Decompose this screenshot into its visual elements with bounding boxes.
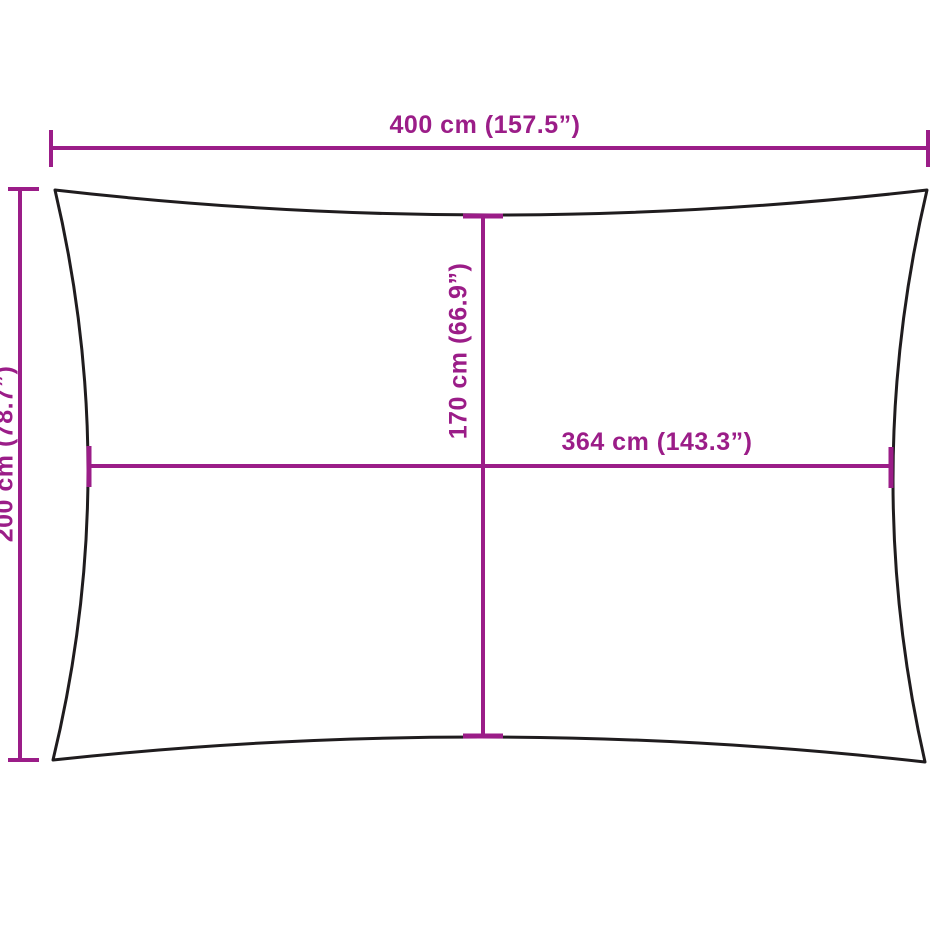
dimension-diagram: 400 cm (157.5”) 200 cm (78.7”) 170 cm (6… [0,0,930,930]
sail-outline [53,190,927,762]
center-height-dimension-label: 170 cm (66.9”) [445,263,474,440]
top-width-dimension-label: 400 cm (157.5”) [390,111,581,140]
center-width-dimension-label: 364 cm (143.3”) [562,428,753,457]
left-height-dimension-label: 200 cm (78.7”) [0,366,20,543]
center-width-dimension-line [88,446,892,488]
